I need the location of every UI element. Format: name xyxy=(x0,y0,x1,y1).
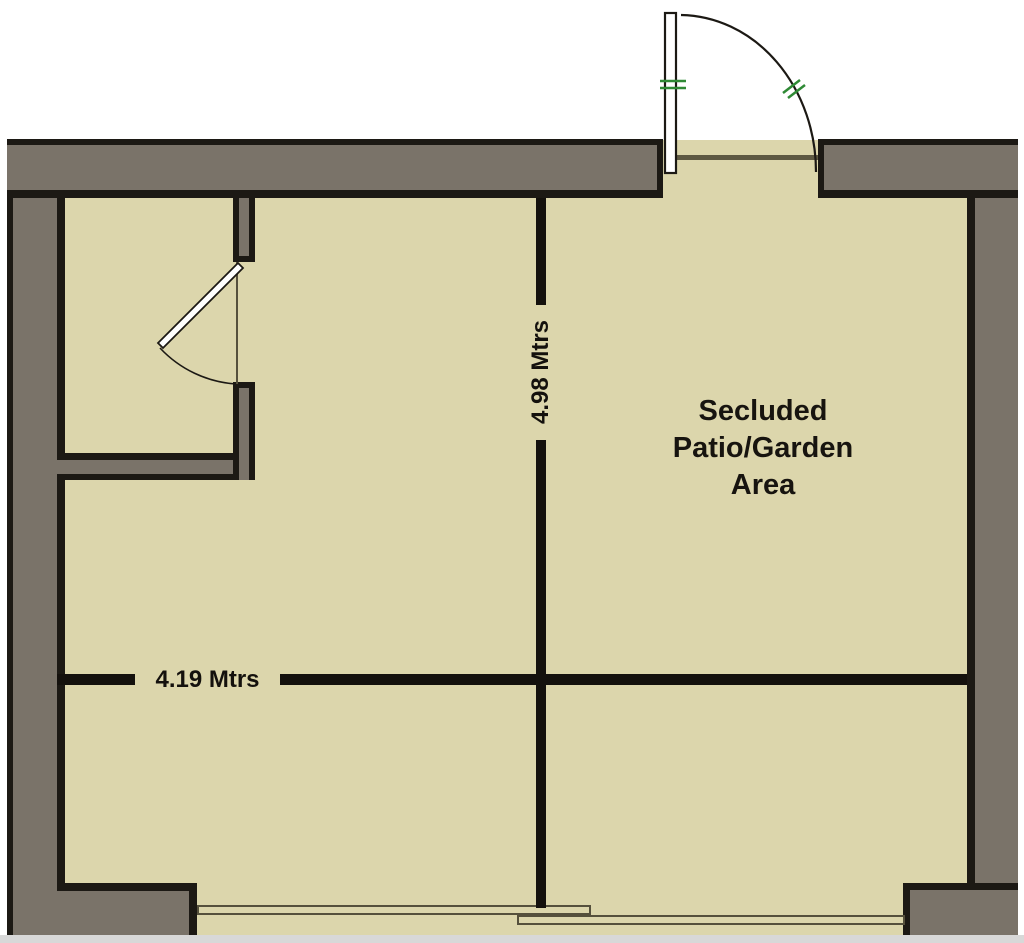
patio-garden-label: Secluded Patio/Garden Area xyxy=(617,393,909,504)
entrance-doorway-floor xyxy=(663,140,818,200)
image-edge-strip xyxy=(0,935,1024,943)
dimension-label-horizontal: 4.19 Mtrs xyxy=(135,664,280,696)
entrance-door-tick-leaf xyxy=(660,81,686,88)
patio-garden-label-line2: Patio/Garden xyxy=(617,430,909,467)
floor-area xyxy=(57,190,970,935)
outer-wall-right xyxy=(967,139,1018,940)
patio-garden-label-line3: Area xyxy=(617,467,909,504)
inner-room-bottom-wall xyxy=(57,453,255,480)
outer-wall-bottom-left xyxy=(57,883,197,935)
inner-room-door-jamb-bottom xyxy=(233,382,255,480)
outer-wall-left xyxy=(7,139,65,940)
entrance-door-tick-arc xyxy=(783,80,805,98)
patio-garden-label-line1: Secluded xyxy=(617,393,909,430)
interior-door-opening-line xyxy=(236,262,238,384)
sliding-panel-left xyxy=(197,905,591,915)
outer-wall-top-left xyxy=(7,139,663,198)
outer-wall-top-right xyxy=(818,139,1018,198)
entrance-threshold xyxy=(667,155,818,160)
dimension-line-horizontal-left xyxy=(57,674,135,685)
dimension-label-vertical: 4.98 Mtrs xyxy=(526,302,556,442)
outer-wall-bottom-right xyxy=(903,883,1018,935)
dimension-line-horizontal-right xyxy=(280,674,967,685)
inner-room-door-jamb-top xyxy=(233,198,255,262)
floor-plan: 4.98 Mtrs 4.19 Mtrs Secluded Patio/Garde… xyxy=(0,0,1024,943)
dimension-line-vertical-upper xyxy=(536,198,546,305)
sliding-panel-right xyxy=(517,915,905,925)
